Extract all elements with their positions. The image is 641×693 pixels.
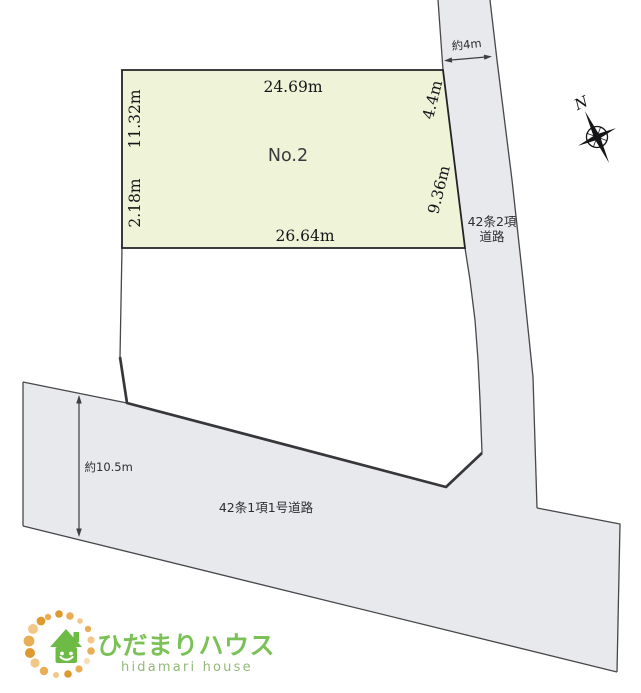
compass-north-label: N: [570, 92, 591, 115]
south-road-label: 42条1項1号道路: [219, 500, 314, 515]
east-road-label-line1: 42条2項: [468, 214, 517, 229]
dim-bottom: 26.64m: [275, 227, 334, 245]
dim-left-upper: 11.32m: [126, 89, 144, 148]
south-road-width-label: 約10.5m: [85, 460, 133, 474]
plot-number-label: No.2: [268, 146, 308, 166]
middle-parcel-left-edge-upper: [120, 248, 122, 357]
dim-top: 24.69m: [263, 78, 322, 96]
logo-house-icon: [50, 629, 82, 663]
logo-name-jp: ひだまりハウス: [97, 631, 275, 660]
land-plot-diagram: 24.69m 26.64m 11.32m 2.18m 4.4m 9.36m No…: [0, 0, 641, 693]
compass: N: [558, 86, 628, 172]
east-road-label-line2: 道路: [479, 229, 505, 244]
company-logo: ひだまりハウス hidamari house: [24, 610, 275, 678]
logo-name-en: hidamari house: [121, 660, 253, 675]
dim-left-lower: 2.18m: [126, 178, 144, 228]
